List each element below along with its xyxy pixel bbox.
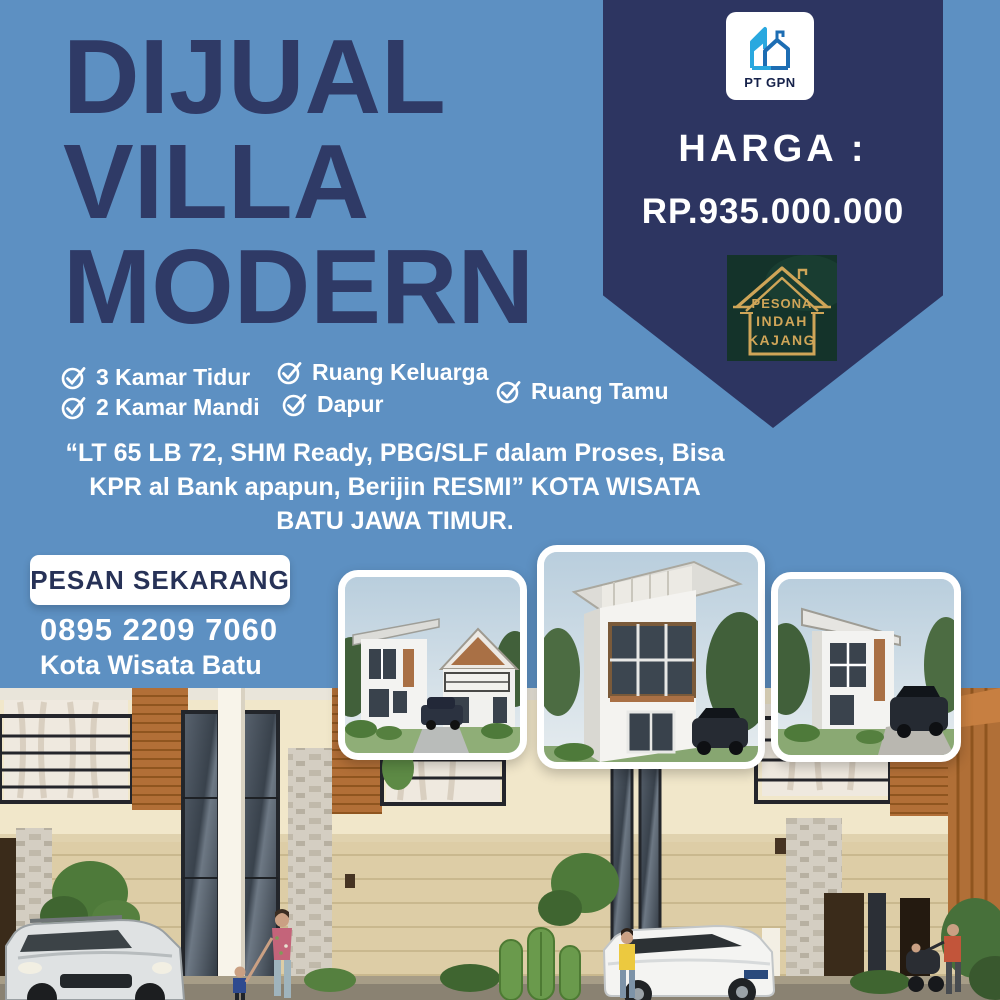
pesan-sekarang-button[interactable]: PESAN SEKARANG [30, 555, 290, 605]
price-value: RP.935.000.000 [603, 192, 943, 232]
price-ribbon: PT GPN HARGA : RP.935.000.000 PESONA IND… [603, 0, 943, 428]
title-line-1: DIJUAL [63, 25, 623, 130]
pt-gpn-label: PT GPN [744, 75, 795, 90]
feature-item-kamar-mandi: 2 Kamar Mandi [60, 394, 260, 421]
pesona-house-icon: PESONA INDAH KAJANG [727, 255, 837, 361]
title-line-2: VILLA [63, 130, 623, 235]
page-title: DIJUAL VILLA MODERN [63, 25, 623, 340]
description-line-3: BATU JAWA TIMUR. [28, 504, 762, 538]
villa-sale-poster: DIJUAL VILLA MODERN PT GPN HARGA : RP.93… [0, 0, 1000, 1000]
feature-label: Dapur [317, 391, 383, 418]
feature-item-kamar-tidur: 3 Kamar Tidur [60, 364, 250, 391]
pesona-indah-kajang-logo: PESONA INDAH KAJANG [727, 255, 837, 361]
check-icon [495, 378, 522, 405]
check-icon [60, 364, 87, 391]
silver-suv [6, 917, 184, 1000]
title-line-3: MODERN [63, 235, 623, 340]
feature-label: 3 Kamar Tidur [96, 364, 250, 391]
pt-gpn-logo: PT GPN [726, 12, 814, 100]
pesona-line-1: PESONA [752, 296, 813, 311]
description: “LT 65 LB 72, SHM Ready, PBG/SLF dalam P… [28, 436, 762, 538]
feature-label: Ruang Keluarga [312, 359, 488, 386]
pt-gpn-building-icon [743, 22, 797, 74]
check-icon [276, 359, 303, 386]
phone-number: 0895 2209 7060 [40, 612, 278, 648]
villa-photo-2 [537, 545, 765, 769]
location-text: Kota Wisata Batu [40, 650, 262, 681]
feature-item-ruang-keluarga: Ruang Keluarga [276, 359, 488, 386]
price-label: HARGA : [603, 128, 943, 171]
feature-label: 2 Kamar Mandi [96, 394, 260, 421]
feature-item-dapur: Dapur [281, 391, 383, 418]
description-line-2: KPR al Bank apapun, Berijin RESMI” KOTA … [28, 470, 762, 504]
check-icon [60, 394, 87, 421]
villa-photo-3 [771, 572, 961, 762]
pesona-line-3: KAJANG [748, 332, 816, 348]
check-icon [281, 391, 308, 418]
pesona-line-2: INDAH [756, 313, 808, 329]
description-line-1: “LT 65 LB 72, SHM Ready, PBG/SLF dalam P… [28, 436, 762, 470]
villa-photo-1 [338, 570, 527, 760]
feature-label: Ruang Tamu [531, 378, 669, 405]
feature-item-ruang-tamu: Ruang Tamu [495, 378, 669, 405]
